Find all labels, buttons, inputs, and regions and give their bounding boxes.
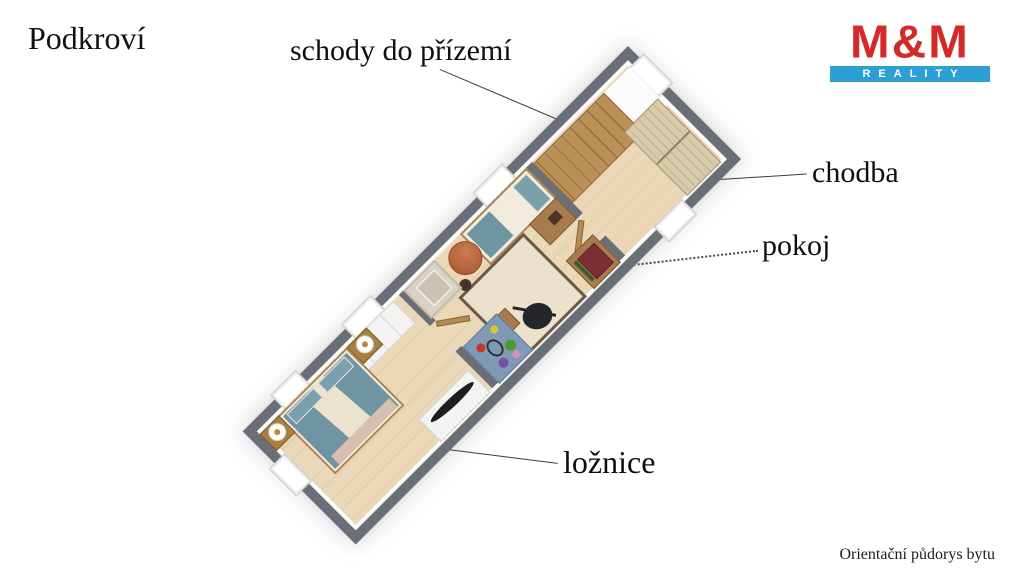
label-room: pokoj (762, 229, 830, 263)
playmat-shape-purple (496, 356, 510, 370)
logo-tagline: REALITY (830, 66, 990, 82)
desk-items (547, 210, 563, 226)
label-hallway: chodba (812, 156, 899, 190)
floorplan-building (243, 46, 742, 545)
label-stairs: schody do přízemí (290, 34, 512, 68)
page-title: Podkroví (28, 20, 145, 57)
logo-wordmark: M&M (824, 21, 997, 67)
floorplan-page: Podkroví Orientační půdorys bytu M&M REA… (0, 0, 1024, 576)
playmat-shape-yellow (489, 324, 500, 335)
label-bedroom: ložnice (563, 444, 655, 481)
footnote: Orientační půdorys bytu (839, 546, 995, 564)
agency-logo: M&M REALITY (830, 22, 990, 82)
